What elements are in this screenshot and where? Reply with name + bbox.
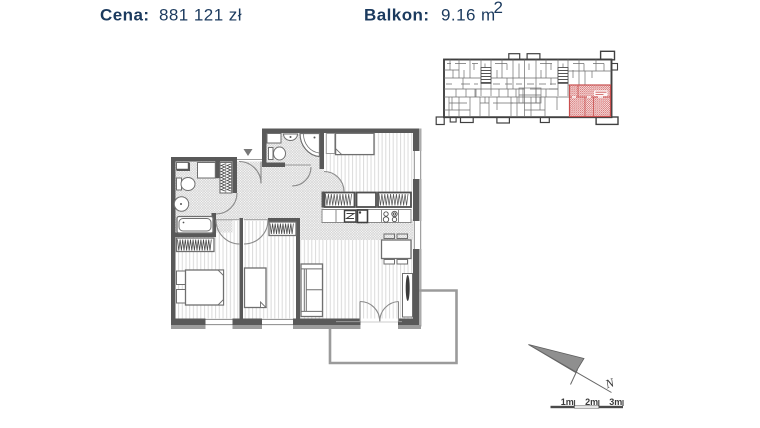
- svg-text:881 121 zł: 881 121 zł: [159, 6, 242, 25]
- svg-text:Cena:: Cena:: [100, 6, 149, 25]
- svg-text:1m: 1m: [561, 397, 574, 407]
- svg-text:Balkon:: Balkon:: [364, 6, 430, 25]
- svg-text:9.16 m: 9.16 m: [441, 6, 496, 25]
- svg-text:3m: 3m: [609, 397, 622, 407]
- svg-text:2m: 2m: [585, 397, 598, 407]
- svg-text:2: 2: [494, 0, 504, 17]
